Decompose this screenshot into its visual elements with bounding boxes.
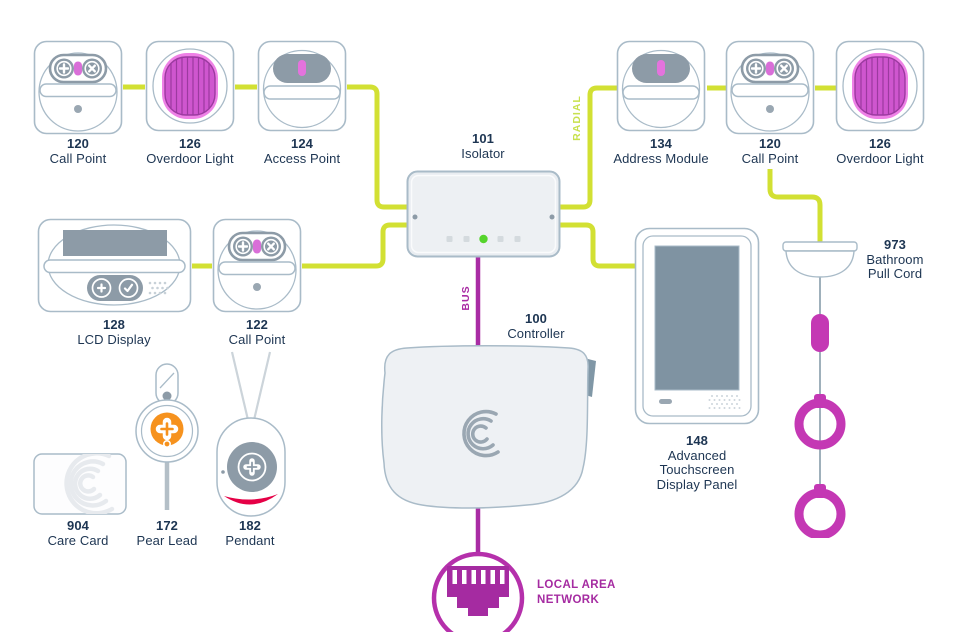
device-controller-100 bbox=[377, 343, 599, 513]
green-led bbox=[479, 235, 487, 243]
cancel-button-icon bbox=[261, 237, 281, 257]
device-pendant-182 bbox=[212, 350, 302, 520]
overdoor-light-illustration bbox=[145, 40, 235, 132]
address-module-illustration bbox=[616, 40, 706, 132]
nurse-call-system-diagram: 120 Call Point 126 Overdoor Light 124 Ac… bbox=[0, 0, 962, 632]
label-call-point-120-a: 120 Call Point bbox=[18, 137, 138, 166]
label-call-point-120-b: 120 Call Point bbox=[710, 137, 830, 166]
pendant-illustration bbox=[212, 350, 302, 520]
controller-illustration bbox=[377, 343, 599, 513]
call-point-illustration bbox=[33, 40, 123, 135]
lcd-display-illustration bbox=[37, 218, 192, 313]
pull-cord-illustration bbox=[770, 238, 870, 538]
lan-node bbox=[434, 554, 522, 632]
device-access-point-124 bbox=[257, 40, 347, 132]
label-address-module-134: 134 Address Module bbox=[601, 137, 721, 166]
accept-button-icon bbox=[746, 59, 766, 79]
device-call-point-120-a bbox=[33, 40, 123, 135]
touchscreen-illustration bbox=[634, 227, 760, 425]
touch-screen bbox=[655, 246, 739, 390]
device-lcd-display-128 bbox=[37, 218, 192, 313]
label-overdoor-light-126-a: 126 Overdoor Light bbox=[130, 137, 250, 166]
lcd-screen bbox=[63, 230, 167, 256]
label-controller-100: 100 Controller bbox=[476, 312, 596, 341]
accept-button-icon bbox=[233, 237, 253, 257]
care-card-illustration bbox=[33, 453, 127, 515]
device-pear-lead-172 bbox=[130, 360, 205, 515]
device-pull-cord-973 bbox=[770, 238, 870, 538]
bus-label: BUS bbox=[460, 280, 472, 316]
label-pendant-182: 182 Pendant bbox=[190, 519, 310, 548]
label-overdoor-light-126-b: 126 Overdoor Light bbox=[820, 137, 940, 166]
cord-bead bbox=[811, 314, 829, 352]
device-isolator-101 bbox=[406, 170, 561, 258]
device-care-card-904 bbox=[33, 453, 127, 515]
label-access-point-124: 124 Access Point bbox=[242, 137, 362, 166]
device-call-point-122 bbox=[212, 218, 302, 313]
device-address-module-134 bbox=[616, 40, 706, 132]
device-call-point-120-b bbox=[725, 40, 815, 135]
lanyard bbox=[232, 352, 270, 420]
radial-bus-label: RADIAL bbox=[571, 90, 583, 146]
label-call-point-122: 122 Call Point bbox=[197, 318, 317, 347]
device-touchscreen-148 bbox=[634, 227, 760, 425]
cancel-button-icon bbox=[82, 59, 102, 79]
call-point-illustration bbox=[725, 40, 815, 135]
overdoor-light-illustration bbox=[835, 40, 925, 132]
left-port-dot bbox=[413, 215, 418, 220]
device-overdoor-light-126-b bbox=[835, 40, 925, 132]
accept-button-icon bbox=[54, 59, 74, 79]
home-button bbox=[659, 399, 672, 404]
pull-ring-2 bbox=[799, 484, 841, 535]
cancel-button-icon bbox=[774, 59, 794, 79]
isolator-illustration bbox=[406, 170, 561, 258]
label-touchscreen-148: 148 Advanced Touchscreen Display Panel bbox=[637, 434, 757, 492]
label-pull-cord-973: 973 Bathroom Pull Cord bbox=[835, 238, 955, 282]
device-overdoor-light-126-a bbox=[145, 40, 235, 132]
call-point-illustration bbox=[212, 218, 302, 313]
label-lcd-display-128: 128 LCD Display bbox=[54, 318, 174, 347]
label-isolator-101: 101 Isolator bbox=[423, 132, 543, 161]
pear-lead-illustration bbox=[130, 360, 205, 515]
right-port-dot bbox=[550, 215, 555, 220]
lan-label: LOCAL AREA NETWORK bbox=[537, 578, 616, 607]
access-point-illustration bbox=[257, 40, 347, 132]
